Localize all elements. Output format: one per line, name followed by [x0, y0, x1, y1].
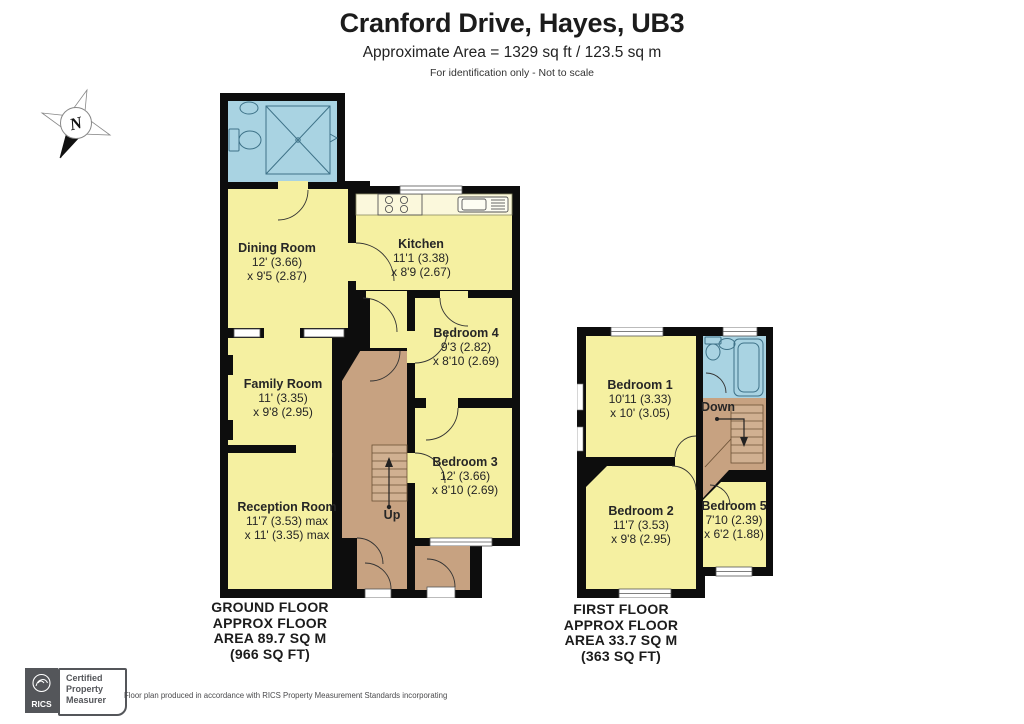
bathroom-window: [723, 327, 757, 336]
stairs-up: [372, 445, 407, 509]
room-label-bedroom4: Bedroom 4 9'3 (2.82) x 8'10 (2.69): [433, 326, 499, 368]
footer-disclaimer: Floor plan produced in accordance with R…: [124, 669, 447, 724]
stairs-up-label: Up: [384, 508, 401, 522]
bay-recess: [577, 427, 583, 451]
kitchen-sink-icon: [458, 197, 508, 212]
room-label-reception: Reception Room 11'7 (3.53) max x 11' (3.…: [237, 500, 336, 542]
room-label-bedroom2: Bedroom 2 11'7 (3.53) x 9'8 (2.95): [608, 504, 673, 546]
certified-measurer-badge: Certified Property Measurer: [58, 668, 127, 716]
svg-text:RICS: RICS: [31, 699, 52, 709]
room-label-kitchen: Kitchen 11'1 (3.38) x 8'9 (2.67): [391, 237, 451, 279]
rics-lion-icon: RICS: [25, 668, 58, 713]
bedroom2-window: [619, 589, 671, 598]
first-floor-caption: FIRST FLOOR APPROX FLOOR AREA 33.7 SQ M …: [564, 602, 678, 664]
page-subtitle: Approximate Area = 1329 sq ft / 123.5 sq…: [0, 44, 1024, 62]
bay-recess: [577, 384, 583, 410]
room-label-dining: Dining Room 12' (3.66) x 9'5 (2.87): [238, 241, 316, 283]
bedroom1-window: [611, 327, 663, 336]
rics-logo: RICS: [25, 668, 58, 713]
kitchen-window: [400, 186, 462, 194]
scale-note: For identification only - Not to scale: [0, 67, 1024, 79]
ground-floor-caption: GROUND FLOOR APPROX FLOOR AREA 89.7 SQ M…: [211, 600, 329, 662]
room-label-bedroom1: Bedroom 1 10'11 (3.33) x 10' (3.05): [607, 378, 672, 420]
porch: [415, 546, 470, 590]
first-floor-plan: [577, 327, 773, 598]
bedroom5-window: [716, 567, 752, 576]
bedroom3-window: [430, 538, 492, 546]
vestibule: [370, 291, 407, 348]
floorplan-page: Cranford Drive, Hayes, UB3 Approximate A…: [0, 0, 1024, 724]
compass-icon: N: [40, 88, 112, 160]
room-label-bedroom3: Bedroom 3 12' (3.66) x 8'10 (2.69): [432, 455, 498, 497]
stairs-down-label: Down: [701, 400, 735, 414]
page-title: Cranford Drive, Hayes, UB3: [0, 8, 1024, 39]
room-label-bedroom5: Bedroom 5 7'10 (2.39) x 6'2 (1.88): [701, 499, 766, 541]
room-label-family: Family Room 11' (3.35) x 9'8 (2.95): [244, 377, 323, 419]
